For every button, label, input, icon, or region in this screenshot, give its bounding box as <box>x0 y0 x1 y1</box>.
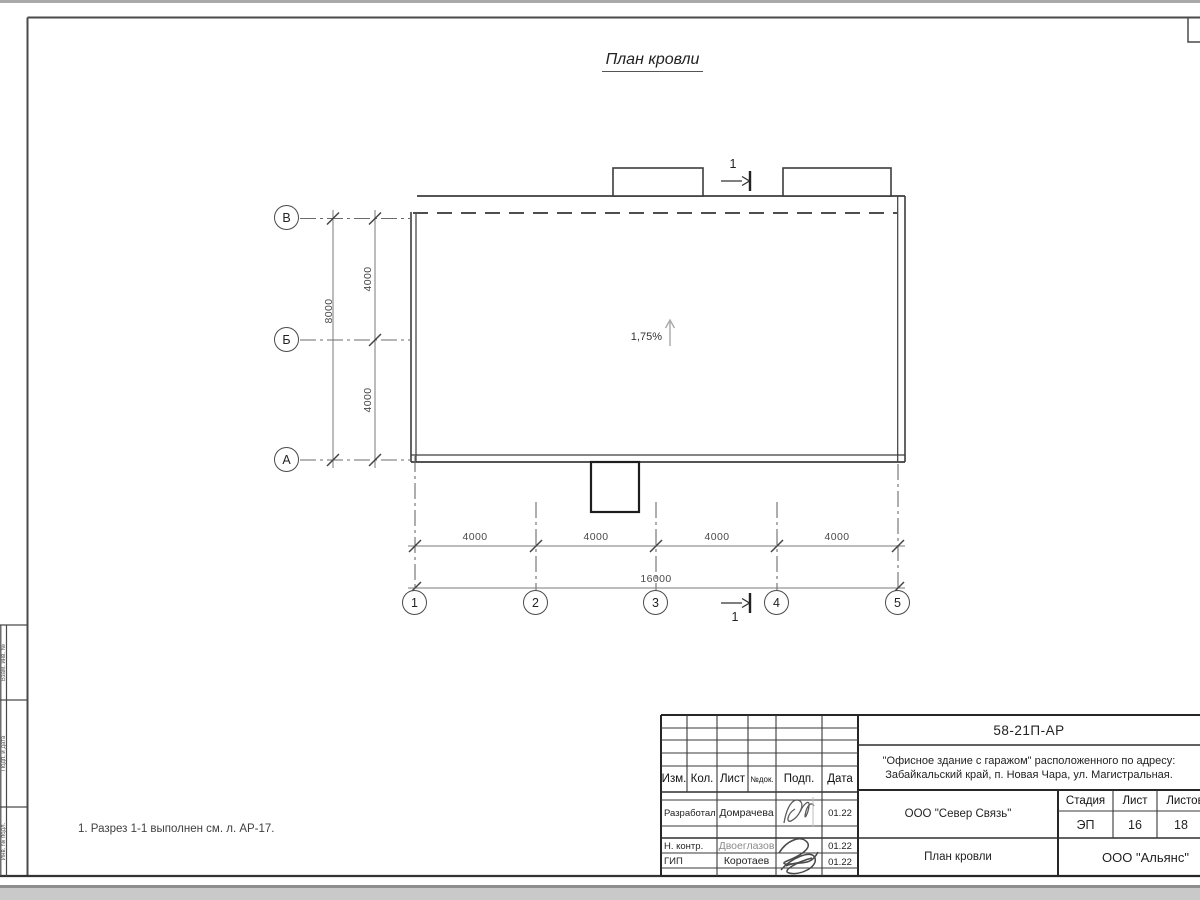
axis-bubble-a: А <box>274 447 299 472</box>
canopy-box <box>591 462 639 512</box>
project-address-line2: Забайкальский край, п. Новая Чара, ул. М… <box>885 768 1173 782</box>
section-number-bottom: 1 <box>727 610 743 624</box>
side-label-podp: Подп. и дата <box>0 700 7 807</box>
dim-bottom-16000: 16000 <box>634 573 678 585</box>
drawing-title-text: План кровли <box>602 51 704 72</box>
dim-left-4000-top: 4000 <box>362 257 374 301</box>
dim-bottom-4000-4: 4000 <box>815 531 859 543</box>
signer-role-developer: Разработал <box>664 806 716 820</box>
sheet-note: 1. Разрез 1-1 выполнен см. л. АР-17. <box>78 821 378 836</box>
dim-left-8000: 8000 <box>323 289 335 333</box>
axis-bubble-5: 5 <box>885 590 910 615</box>
section-number-top: 1 <box>725 157 741 171</box>
signer-date-developer: 01.22 <box>822 806 858 820</box>
axis-bubble-4: 4 <box>764 590 789 615</box>
slope-arrow <box>666 320 675 346</box>
stage-label: Стадия <box>1058 790 1113 811</box>
project-address: "Офисное здание с гаражом" расположенног… <box>858 745 1200 790</box>
slope-label: 1,75% <box>612 330 662 344</box>
dim-bottom-4000-3: 4000 <box>695 531 739 543</box>
axis-bubble-v: В <box>274 205 299 230</box>
drawing-title: План кровли <box>575 50 730 72</box>
rev-col-izm: Изм. <box>661 766 687 792</box>
roof-penetration-boxes <box>613 168 891 196</box>
rev-col-data: Дата <box>822 766 858 792</box>
sheet-name: План кровли <box>858 838 1058 876</box>
signer-date-gip: 01.22 <box>822 855 858 869</box>
rev-col-kol: Кол. <box>687 766 717 792</box>
project-address-line1: "Офисное здание с гаражом" расположенног… <box>883 754 1176 768</box>
rev-col-list: Лист <box>717 766 748 792</box>
scan-edge-bottom <box>0 888 1200 900</box>
signer-date-checker: 01.22 <box>822 839 858 853</box>
signer-role-checker: Н. контр. <box>664 839 716 853</box>
sheets-total: 18 <box>1157 811 1200 838</box>
axis-bubble-2: 2 <box>523 590 548 615</box>
side-label-inv: Инв. № подл. <box>0 807 7 876</box>
dim-bottom-4000-1: 4000 <box>453 531 497 543</box>
sheet-number: 16 <box>1113 811 1157 838</box>
side-label-vzam: Взам. инв. № <box>0 625 7 700</box>
dim-bottom-4000-2: 4000 <box>574 531 618 543</box>
roof-outline <box>411 196 905 462</box>
signer-name-checker: Двоеглазов <box>717 839 776 853</box>
section-mark-top <box>721 171 750 191</box>
axis-bubble-3: 3 <box>643 590 668 615</box>
signer-name-gip: Коротаев <box>717 854 776 868</box>
scan-edge-top <box>0 0 1200 3</box>
stage-value: ЭП <box>1058 811 1113 838</box>
drawing-sheet: План кровли 1,75% 1 1 В Б А 1 2 3 4 5 40… <box>0 0 1200 900</box>
signer-role-gip: ГИП <box>664 854 716 868</box>
dim-left-4000-bottom: 4000 <box>362 378 374 422</box>
sheets-label: Листов <box>1157 790 1200 811</box>
doc-number: 58-21П-АР <box>858 715 1200 745</box>
contractor-name: ООО "Север Связь" <box>858 790 1058 838</box>
rev-col-podp: Подп. <box>776 766 822 792</box>
axis-bubble-1: 1 <box>402 590 427 615</box>
rev-col-ndok: №док. <box>748 766 776 792</box>
sheet-label: Лист <box>1113 790 1157 811</box>
signer-name-developer: Домрачева <box>717 806 776 820</box>
signature-developer <box>784 797 814 827</box>
company-name: ООО "Альянс" <box>1058 838 1200 876</box>
axis-bubble-b: Б <box>274 327 299 352</box>
